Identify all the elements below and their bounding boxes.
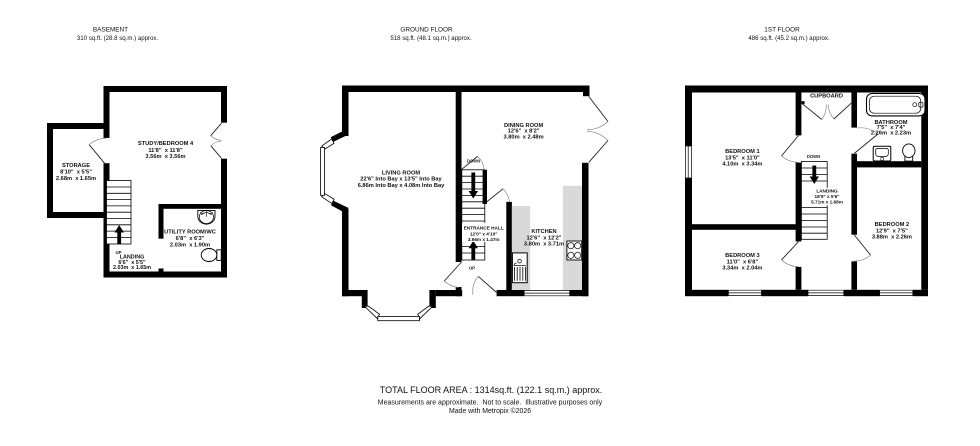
svg-text:3.80m x 2.48m: 3.80m x 2.48m <box>504 134 544 140</box>
svg-text:BEDROOM 3: BEDROOM 3 <box>725 253 759 259</box>
svg-text:GROUND FLOOR: GROUND FLOOR <box>400 27 453 34</box>
svg-text:2.03m x 1.65m: 2.03m x 1.65m <box>113 265 151 271</box>
svg-text:13'5" x 11'0": 13'5" x 11'0" <box>725 155 760 161</box>
svg-text:18'9" x 5'6": 18'9" x 5'6" <box>815 194 840 199</box>
svg-text:1ST FLOOR: 1ST FLOOR <box>764 27 800 34</box>
svg-text:11'0" x 6'8": 11'0" x 6'8" <box>727 259 759 265</box>
svg-text:518 sq.ft. (48.1 sq.m.) approx: 518 sq.ft. (48.1 sq.m.) approx. <box>390 35 472 42</box>
svg-text:TOTAL FLOOR AREA : 1314sq.ft.: TOTAL FLOOR AREA : 1314sq.ft. (122.1 sq.… <box>380 385 602 395</box>
svg-text:DOWN: DOWN <box>467 158 480 163</box>
svg-text:486 sq.ft. (45.2 sq.m.) approx: 486 sq.ft. (45.2 sq.m.) approx. <box>748 35 830 42</box>
svg-text:BASEMENT: BASEMENT <box>93 27 128 34</box>
svg-text:12'6" x 12'2": 12'6" x 12'2" <box>527 235 562 241</box>
svg-text:4.10m x 3.34m: 4.10m x 3.34m <box>722 162 762 168</box>
svg-text:BEDROOM 2: BEDROOM 2 <box>875 222 909 228</box>
svg-text:3.88m x 2.26m: 3.88m x 2.26m <box>872 235 912 241</box>
svg-text:6'8" x 6'3": 6'8" x 6'3" <box>176 236 205 242</box>
svg-text:22'6" Into Bay x 13'5" Into Ba: 22'6" Into Bay x 13'5" Into Bay <box>360 177 442 183</box>
svg-text:8'10" x 5'5": 8'10" x 5'5" <box>60 170 92 176</box>
svg-text:11'8" x 11'8": 11'8" x 11'8" <box>148 148 183 154</box>
svg-text:2.26m x 2.23m: 2.26m x 2.23m <box>871 130 911 136</box>
svg-text:STORAGE: STORAGE <box>62 163 90 169</box>
svg-text:LANDING: LANDING <box>816 189 838 194</box>
svg-text:3.56m x 3.56m: 3.56m x 3.56m <box>145 154 185 160</box>
svg-text:UTILITY ROOM/WC: UTILITY ROOM/WC <box>164 229 216 235</box>
svg-text:ENTRANCE HALL: ENTRANCE HALL <box>464 226 504 231</box>
svg-text:CUPBOARD: CUPBOARD <box>810 94 843 100</box>
svg-text:12'9" x 7'5": 12'9" x 7'5" <box>876 228 908 234</box>
svg-text:6.86m Into Bay x 4.08m Into Ba: 6.86m Into Bay x 4.08m Into Bay <box>358 183 445 189</box>
svg-text:2.68m x 1.65m: 2.68m x 1.65m <box>56 176 96 182</box>
svg-text:3.80m x 3.71m: 3.80m x 3.71m <box>524 242 564 248</box>
svg-text:12'0" x 4'10": 12'0" x 4'10" <box>470 231 498 236</box>
svg-text:310 sq.ft. (28.8 sq.m.) approx: 310 sq.ft. (28.8 sq.m.) approx. <box>77 35 159 42</box>
svg-text:KITCHEN: KITCHEN <box>531 229 556 235</box>
svg-text:BEDROOM 1: BEDROOM 1 <box>725 149 759 155</box>
svg-text:DOWN: DOWN <box>807 154 820 159</box>
svg-text:2.03m x 1.90m: 2.03m x 1.90m <box>170 242 210 248</box>
svg-text:UP: UP <box>469 265 475 270</box>
svg-text:STUDY/BEDROOM 4: STUDY/BEDROOM 4 <box>138 141 194 147</box>
svg-text:3.66m x 1.47m: 3.66m x 1.47m <box>468 237 500 242</box>
svg-text:Made with Metropix ©2026: Made with Metropix ©2026 <box>449 407 531 415</box>
svg-text:LIVING ROOM: LIVING ROOM <box>382 171 420 177</box>
svg-text:5.71m x 1.68m: 5.71m x 1.68m <box>811 199 843 204</box>
svg-text:3.34m x 2.04m: 3.34m x 2.04m <box>722 266 762 272</box>
svg-text:Measurements are approximate.: Measurements are approximate. Not to sca… <box>378 399 603 406</box>
